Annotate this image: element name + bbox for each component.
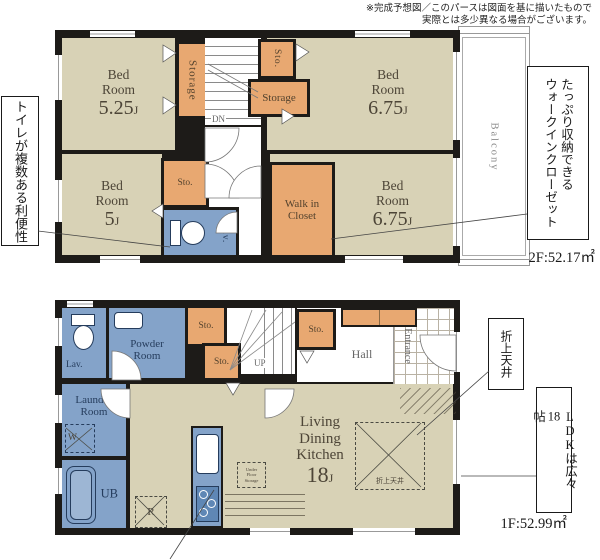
storage-2f-sto: Sto. xyxy=(164,161,206,205)
window xyxy=(90,31,135,37)
callout-ldk: LDKは広々18帖 xyxy=(536,387,572,513)
window xyxy=(345,256,403,263)
room-label: Room xyxy=(102,82,135,97)
callout-wic-line-1: たっぷり収納できる xyxy=(558,78,574,228)
lavatory-1f: Lav. xyxy=(62,308,106,378)
storage-2f-small: Sto. xyxy=(261,42,293,76)
callout-ldk-pre: LDKは広々 xyxy=(562,410,578,490)
bedroom-2f-bottom-left: Bed Room 5J xyxy=(62,154,162,255)
callout-wic-line-2: ウォークインクローゼット xyxy=(542,78,558,228)
storage-2f-horizontal: Storage xyxy=(251,82,307,114)
storage-label: Storage xyxy=(186,60,199,101)
room-size: 6.75 xyxy=(373,208,408,230)
toilet-icon xyxy=(170,220,181,246)
window xyxy=(55,318,62,346)
balcony-slider-window xyxy=(453,52,460,140)
hall-label: Hall xyxy=(223,184,244,199)
kitchen-counter xyxy=(193,428,221,526)
laundry-room: Laundry Room W xyxy=(62,384,126,456)
stove-icon xyxy=(196,486,219,522)
lav-label: Lav. xyxy=(66,360,83,370)
callout-ldk-post: 帖 xyxy=(530,410,546,490)
room-label: Bed xyxy=(108,67,130,82)
room-size: 5 xyxy=(105,208,115,230)
ub-label: UB xyxy=(101,487,118,502)
room-label: Room xyxy=(373,193,413,208)
wic-label: Walk in xyxy=(285,198,319,211)
room-label: Room xyxy=(95,193,128,208)
bathtub-icon xyxy=(66,466,96,524)
callout-ceiling: 折上天井 xyxy=(488,318,524,390)
washer-label: W xyxy=(68,433,77,443)
balcony-label: Balcony xyxy=(489,122,500,171)
callout-ceiling-text: 折上天井 xyxy=(498,330,514,378)
storage-label: Sto. xyxy=(272,49,282,68)
sink-icon xyxy=(114,312,143,329)
storage-2f-vertical: Storage xyxy=(179,44,205,116)
room-label: Bed xyxy=(373,178,413,193)
callout-ldk-num: 18 xyxy=(546,410,562,490)
lavatory-2f: Lav. xyxy=(164,210,236,255)
toilet-icon xyxy=(73,325,94,350)
window xyxy=(353,528,415,535)
window xyxy=(67,301,93,307)
storage-label: Sto. xyxy=(214,357,229,367)
burner-icon xyxy=(207,499,216,508)
laundry-label: Laundry xyxy=(75,394,112,407)
entry-door-opening xyxy=(453,332,460,372)
floor-2-area-label: 2F:52.17㎡ xyxy=(470,246,595,267)
window xyxy=(55,468,62,494)
window xyxy=(55,55,62,100)
room-size-unit: J xyxy=(134,103,139,117)
room-label: Room xyxy=(368,82,408,97)
stairs-down-label: DN xyxy=(211,114,226,124)
storage-label: Storage xyxy=(262,92,296,105)
walk-in-closet: Walk in Closet xyxy=(272,165,332,255)
window xyxy=(100,256,140,263)
storage-1f-c: Sto. xyxy=(299,312,333,347)
callout-wic: たっぷり収納できる ウォークインクローゼット xyxy=(527,66,589,240)
powder-room-label: Powder xyxy=(130,338,164,351)
powder-room-label: Room xyxy=(134,350,161,363)
room-size-unit: J xyxy=(403,103,408,117)
storage-label: Sto. xyxy=(308,325,323,335)
window xyxy=(250,528,290,535)
kitchen-sink-icon xyxy=(196,434,219,474)
callout-toilet: トイレが複数ある利便性 xyxy=(1,96,39,246)
under-floor-storage-box: Under Floor Storage xyxy=(237,462,266,488)
burner-icon xyxy=(199,508,208,517)
window xyxy=(355,31,410,37)
callout-toilet-text: トイレが複数ある利便性 xyxy=(12,100,28,243)
storage-label: Sto. xyxy=(177,178,192,188)
floor-1-plan: Lav. Powder Room Sto. UP Sto. Hall Sto. xyxy=(55,300,460,535)
hall-label: Hall xyxy=(352,347,373,362)
hatch-decor xyxy=(225,494,305,520)
hatch-decor xyxy=(400,388,456,414)
storage-label: Sto. xyxy=(198,321,213,331)
window xyxy=(55,395,62,423)
floorplan-canvas: ※完成予想図／このパースは図面を基に描いたもので 実際とは多少異なる場合がござい… xyxy=(0,0,600,560)
ldk-size-unit: J xyxy=(329,471,334,485)
unit-bath: UB xyxy=(62,460,126,528)
disclaimer-line-2: 実際とは多少異なる場合がございます。 xyxy=(262,15,592,27)
laundry-label: Room xyxy=(81,406,108,419)
washer-box: W xyxy=(65,424,95,453)
coffered-ceiling-label: 折上天井 xyxy=(376,476,404,486)
ufs-label: Storage xyxy=(245,478,259,484)
balcony: Balcony xyxy=(458,33,530,260)
window xyxy=(55,180,62,222)
room-size-unit: J xyxy=(408,214,413,228)
floor-2-plan: Bed Room 5.25J Storage DN Hall Bed Room … xyxy=(55,30,460,263)
room-label: Bed xyxy=(101,178,123,193)
disclaimer-note: ※完成予想図／このパースは図面を基に描いたもので 実際とは多少異なる場合がござい… xyxy=(262,3,592,27)
fridge-label: R xyxy=(147,506,154,518)
storage-1f-b: Sto. xyxy=(205,346,238,378)
disclaimer-line-1: ※完成予想図／このパースは図面を基に描いたもので xyxy=(262,3,592,15)
living-dining-kitchen: Living Dining Kitchen 18J 折上天井 Under Flo… xyxy=(130,384,453,528)
burner-icon xyxy=(199,490,208,499)
powder-room: Powder Room xyxy=(109,308,185,378)
toilet-icon xyxy=(181,221,205,245)
entrance-label: Entrance xyxy=(402,328,413,364)
lav-label: Lav. xyxy=(220,222,230,243)
fridge-box: R xyxy=(135,496,167,528)
balcony-slider-window xyxy=(453,158,460,246)
ldk-size: 18 xyxy=(307,462,329,487)
room-size: 5.25 xyxy=(99,97,134,119)
stairs-up-label: UP xyxy=(253,358,267,368)
room-size: 6.75 xyxy=(368,97,403,119)
storage-1f-a: Sto. xyxy=(188,308,224,344)
bedroom-2f-top-left: Bed Room 5.25J xyxy=(62,38,175,150)
window xyxy=(453,420,460,484)
floor-1-area-label: 1F:52.99㎡ xyxy=(455,512,567,533)
coffered-ceiling-box: 折上天井 xyxy=(355,422,425,490)
wic-label: Closet xyxy=(288,210,316,223)
room-size-unit: J xyxy=(115,214,120,228)
room-label: Bed xyxy=(368,67,408,82)
entrance-shelf xyxy=(343,310,415,325)
